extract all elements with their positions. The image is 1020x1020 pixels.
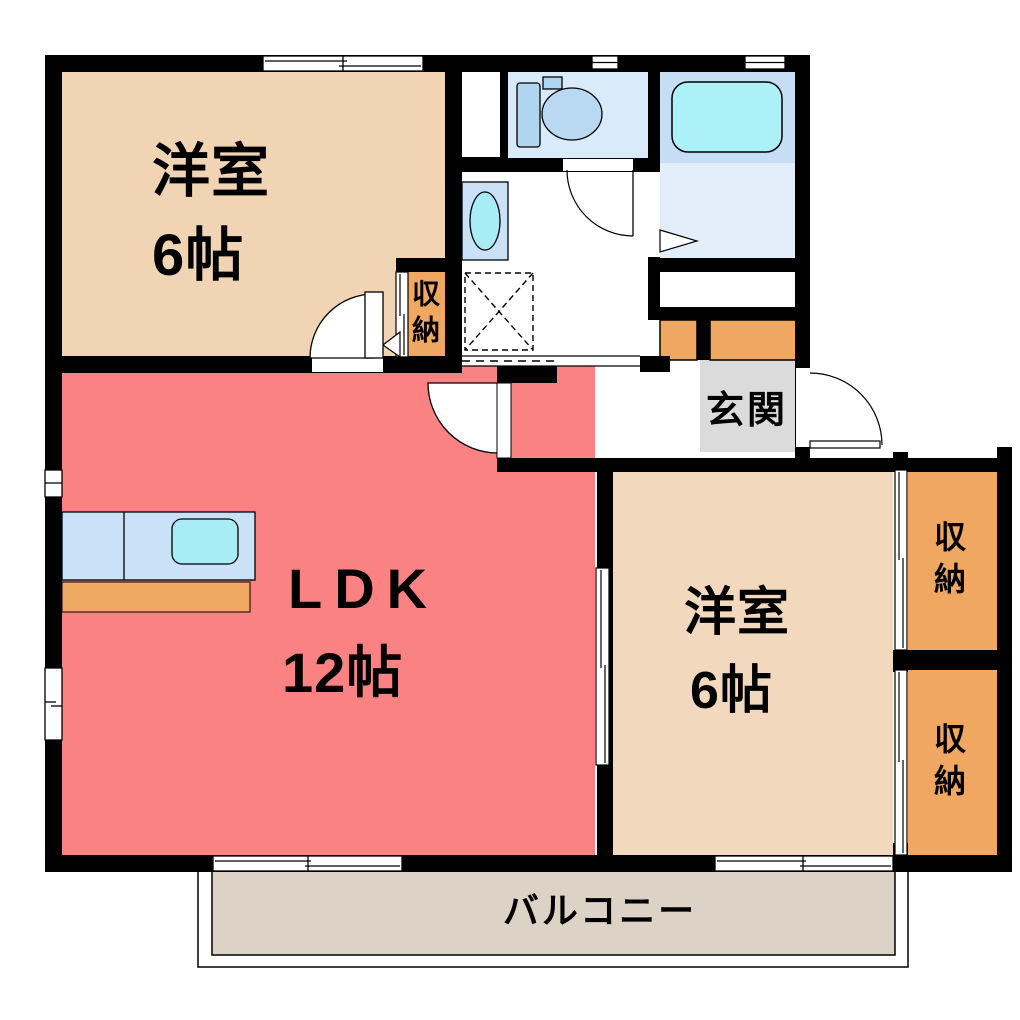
room-label-balcony: バルコニー [450,892,750,930]
bathroom-door-gap [648,172,660,257]
closet-label-right-lower: 収納 [932,722,964,806]
door-swing-toilet [567,170,633,236]
window-toilet [592,56,618,69]
western-room-top-door-gap [312,357,383,372]
washroom-threshold [462,356,640,366]
washbasin-icon [462,182,508,260]
room-size-ldk: 12帖 [282,644,403,703]
kitchen-sink-icon [172,519,238,564]
entrance-door-gap [796,368,810,447]
pipe-space [462,72,500,158]
closet-label-hall: 収納 [410,279,438,351]
room-size-western-top: 6帖 [152,226,244,287]
window-top-bedroom [263,56,423,71]
closet-label-right-upper: 収納 [932,520,964,604]
room-label-western-bottom: 洋室 [684,586,790,641]
room-label-entrance: 玄関 [706,392,788,432]
sliding-door-ldk-bedroom [596,568,609,765]
toilet-door-gap [563,159,633,171]
window-bathroom [745,56,785,69]
kitchen-counter-icon [62,512,255,612]
bathtub-icon [672,82,782,152]
western-room-top-floor [62,72,445,357]
room-label-ldk: LDK [288,560,439,619]
kitchen-cabinet-icon [62,582,250,612]
window-ldk-left-small [45,470,62,497]
window-ldk-balcony [213,856,402,871]
sliding-door-closet-upper [895,470,907,650]
shoe-cabinet-right [710,320,797,360]
washing-machine-pan-icon [465,273,533,350]
sliding-door-closet-lower [895,670,907,855]
room-size-western-bottom: 6帖 [690,664,773,719]
utility-box [660,272,795,307]
floorplan: 洋室 6帖 LDK 12帖 洋室 6帖 玄関 バルコニー 収納 収納 収納 [0,0,1020,1020]
shoe-cabinet-left [660,320,697,360]
window-bedroom-balcony [715,856,893,871]
room-label-western-top: 洋室 [152,142,270,203]
window-ldk-left-tall [45,668,62,740]
door-swing-entrance [810,373,882,448]
